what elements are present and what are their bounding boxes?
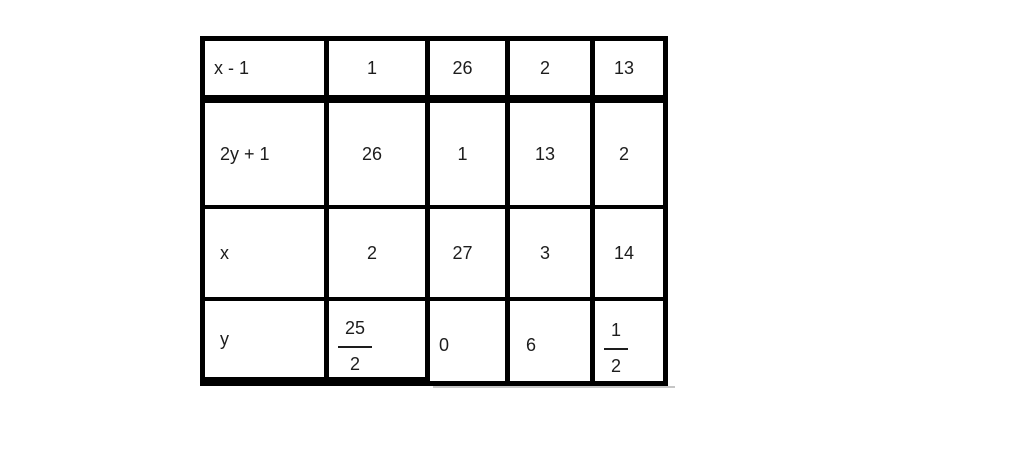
row-label-x-minus-1: x - 1 [205, 41, 329, 103]
fraction-denominator: 2 [350, 348, 360, 373]
math-table: x - 1 1 26 2 13 2y + 1 26 1 13 2 x 2 27 … [200, 36, 668, 386]
cell-r1-c5: 13 [595, 41, 663, 103]
row-label-x: x [205, 209, 329, 301]
cell-r4-c5: 1 2 [595, 301, 663, 381]
fraction-numerator: 1 [604, 321, 628, 350]
fraction-25-over-2: 25 2 [338, 319, 372, 373]
fraction-numerator: 25 [338, 319, 372, 348]
cell-r4-c4: 6 [510, 301, 595, 381]
cell-r4-c2: 25 2 [329, 301, 430, 381]
fraction-1-over-2: 1 2 [604, 321, 628, 375]
row-label-y: y [205, 301, 329, 381]
cell-r3-c2: 2 [329, 209, 430, 301]
cell-r2-c3: 1 [430, 103, 510, 209]
cell-r1-c2: 1 [329, 41, 430, 103]
fraction-denominator: 2 [611, 350, 621, 375]
cell-r2-c4: 13 [510, 103, 595, 209]
page-canvas: x - 1 1 26 2 13 2y + 1 26 1 13 2 x 2 27 … [0, 0, 1024, 470]
cell-r4-c3: 0 [430, 301, 510, 381]
cell-r2-c5: 2 [595, 103, 663, 209]
cell-r3-c4: 3 [510, 209, 595, 301]
cell-r1-c4: 2 [510, 41, 595, 103]
cell-r3-c3: 27 [430, 209, 510, 301]
row-label-2y-plus-1: 2y + 1 [205, 103, 329, 209]
cell-r3-c5: 14 [595, 209, 663, 301]
cell-r1-c3: 26 [430, 41, 510, 103]
cell-r2-c2: 26 [329, 103, 430, 209]
